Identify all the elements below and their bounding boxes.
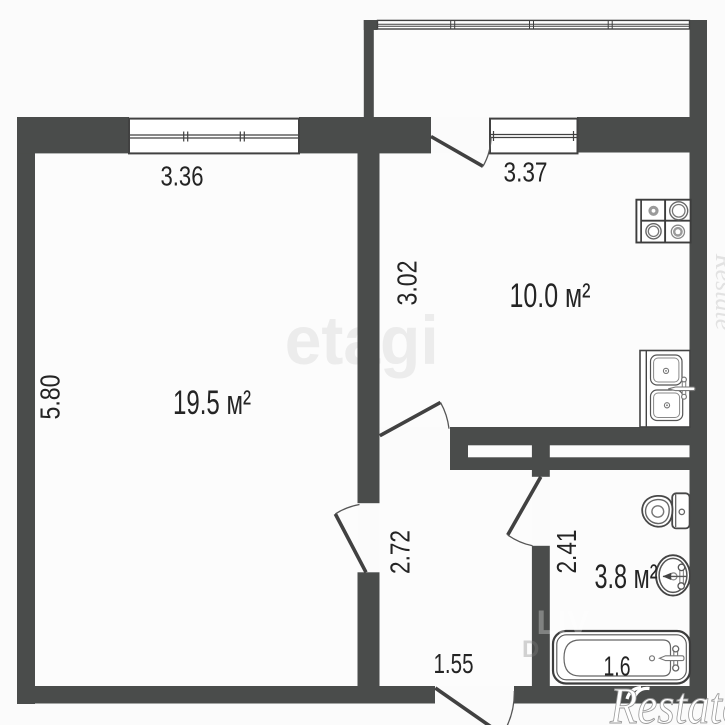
svg-text:LIV: LIV (537, 604, 590, 642)
svg-text:2.41: 2.41 (551, 530, 582, 574)
svg-text:1.55: 1.55 (434, 648, 474, 679)
svg-text:Restate: Restate (609, 678, 725, 725)
svg-text:D: D (522, 636, 539, 663)
svg-text:3.37: 3.37 (504, 157, 548, 188)
svg-text:5.80: 5.80 (35, 375, 66, 420)
svg-text:10.0 м²: 10.0 м² (510, 277, 591, 315)
svg-text:1.6: 1.6 (604, 651, 631, 682)
svg-text:Restate: Restate (710, 253, 725, 331)
svg-text:19.5 м²: 19.5 м² (173, 384, 251, 422)
svg-text:3.36: 3.36 (161, 161, 204, 192)
svg-text:3.8 м²: 3.8 м² (595, 558, 658, 596)
svg-text:2.72: 2.72 (385, 530, 416, 574)
svg-text:3.02: 3.02 (392, 261, 423, 306)
